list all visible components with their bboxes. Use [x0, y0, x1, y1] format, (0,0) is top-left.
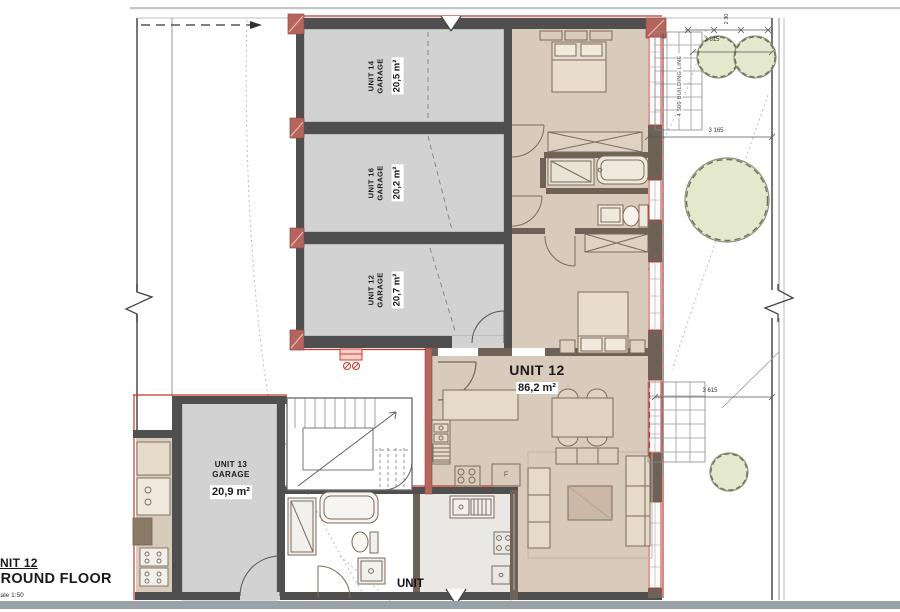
unit-name: UNIT 12: [367, 272, 376, 309]
setback-arrow: [141, 21, 262, 29]
garage12-label: UNIT 12 GARAGE 20,7 m²: [367, 272, 406, 309]
unit-area: 20,7 m²: [391, 272, 403, 309]
titleblock-scale: Scale 1:50: [0, 592, 24, 599]
nightstand: [630, 340, 645, 353]
tree-small: [710, 453, 748, 491]
dim-lower-width: 3 615: [702, 388, 717, 394]
garage13-label: UNIT 13 GARAGE 20,9 m²: [210, 460, 252, 502]
unit-type: GARAGE: [376, 272, 385, 309]
leader-line: [722, 352, 779, 408]
unit-area: 86,2 m²: [516, 382, 558, 394]
trees: [685, 36, 776, 491]
unit-name: UNIT 14: [367, 58, 376, 95]
meter-box: [340, 349, 362, 370]
counter: [443, 390, 518, 420]
unit-type: GARAGE: [210, 471, 252, 481]
sofa-right: [626, 456, 650, 546]
pillow: [555, 44, 576, 56]
tree: [734, 36, 776, 78]
pillow: [581, 44, 602, 56]
bathroom2: [288, 492, 385, 598]
floor-plan-canvas: [0, 0, 900, 612]
titleblock-floor: GROUND FLOOR: [0, 571, 112, 587]
titleblock-unit: UNIT 12: [0, 556, 38, 570]
garage14-label: UNIT 14 GARAGE 20,5 m²: [367, 58, 406, 95]
dim-top-height: 2 30: [724, 14, 730, 25]
burner-box: [140, 548, 168, 566]
unit-name: UNIT 13: [210, 460, 252, 470]
toilet2-bowl: [352, 532, 368, 552]
vanity: [358, 558, 385, 584]
fridge-label: F: [504, 472, 508, 479]
tree-large: [685, 158, 769, 242]
sofa-left: [528, 468, 550, 548]
dim-mid-width: 3 165: [708, 128, 723, 134]
dining-table: [552, 398, 613, 437]
pillow: [581, 338, 602, 351]
garage16-label: UNIT 16 GARAGE 20,2 m²: [367, 165, 406, 202]
dim-top-width: 3 615: [704, 37, 719, 43]
unit12-label: UNIT 12 86,2 m²: [509, 362, 565, 396]
unit-area: 20,9 m²: [210, 485, 252, 499]
floor-plan-page: UNIT 14 GARAGE 20,5 m² UNIT 16 GARAGE 20…: [0, 0, 900, 612]
toilet1-tank: [639, 205, 648, 227]
tv-bench: [556, 448, 618, 464]
unit-area: 20,5 m²: [391, 58, 403, 95]
toilet1-bowl: [623, 206, 639, 226]
unit-type: GARAGE: [376, 58, 385, 95]
building-line-label: 4 500 BUILDING LINE: [677, 54, 683, 119]
burner-box: [140, 568, 168, 586]
unit-area: 20,2 m²: [391, 165, 403, 202]
nightstand: [560, 340, 575, 353]
kitchen-red-wall: [425, 348, 432, 494]
toilet2-tank: [370, 532, 378, 553]
unit-cut-label: UNIT: [397, 578, 424, 590]
staircase: [287, 398, 412, 490]
unit-name: UNIT 12: [509, 362, 565, 378]
bottom-margin-band: [0, 601, 900, 609]
top-margin-line: [130, 7, 900, 9]
unit-name: UNIT 16: [367, 165, 376, 202]
appliance: [133, 518, 152, 545]
unit-type: GARAGE: [376, 165, 385, 202]
pillow: [605, 338, 626, 351]
